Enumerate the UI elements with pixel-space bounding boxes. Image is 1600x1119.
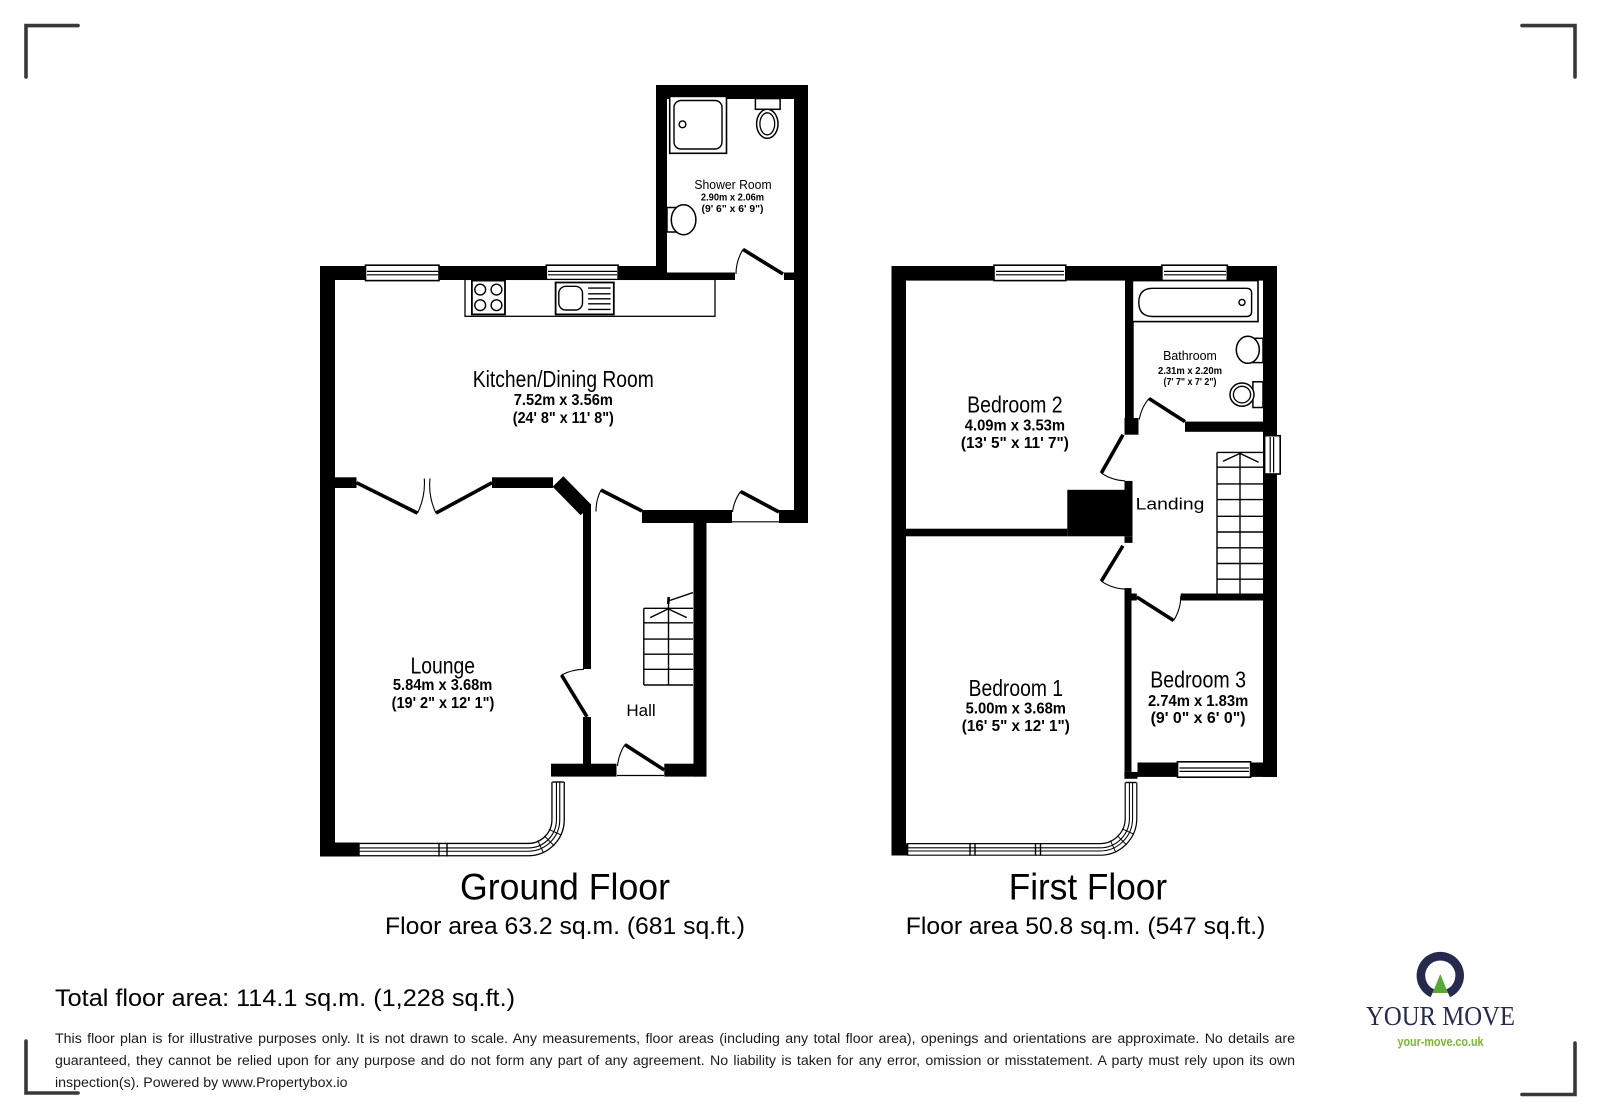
svg-text:YOUR MOVE: YOUR MOVE (1366, 1001, 1515, 1031)
svg-text:your-move.co.uk: your-move.co.uk (1398, 1034, 1485, 1049)
